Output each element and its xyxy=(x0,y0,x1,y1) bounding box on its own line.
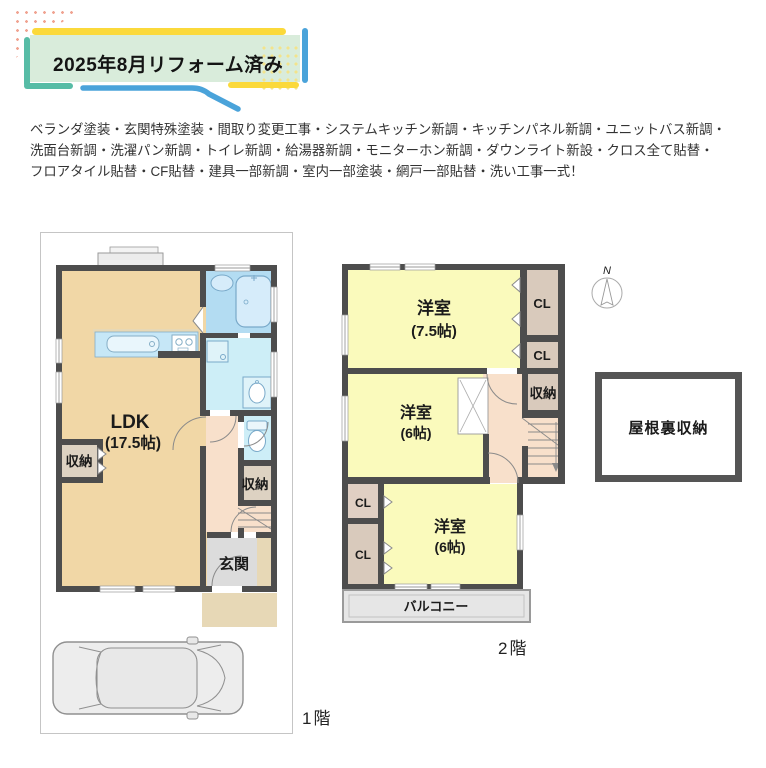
compass-icon: N xyxy=(586,262,630,316)
label-room75: 洋室 xyxy=(417,298,451,318)
kitchen-sink xyxy=(107,336,159,352)
floor-label-1f: 1階 xyxy=(302,704,332,729)
floor-plan-1f: LDK (17.5帖) 収納 収納 玄関 xyxy=(40,232,293,734)
room-75 xyxy=(348,270,520,368)
description-line-2: 洗面台新調・洗濯パン新調・トイレ新調・給湯器新調・モニターホン新調・ダウンライト… xyxy=(30,140,760,161)
renovation-banner: 2025年8月リフォーム済み xyxy=(10,6,330,118)
label-ldk: LDK xyxy=(110,412,149,433)
label-ldk-size: (17.5帖) xyxy=(105,433,161,452)
label-room6mid-size: (6帖) xyxy=(400,425,431,441)
entrance-side-strip xyxy=(257,538,271,586)
banner-title: 2025年8月リフォーム済み xyxy=(53,50,303,77)
label-room6btm-size: (6帖) xyxy=(434,539,465,555)
toilet-fixture xyxy=(247,421,267,452)
kitchen-counter xyxy=(93,329,206,358)
shower-basin xyxy=(211,275,233,291)
hallway-1f xyxy=(206,416,238,532)
banner-bar-teal-left xyxy=(24,37,30,87)
label-room75-size: (7.5帖) xyxy=(411,322,457,340)
entrance-porch xyxy=(202,593,277,627)
label-cl-left1: CL xyxy=(355,496,371,510)
label-cl-left2: CL xyxy=(355,548,371,562)
banner-swoosh xyxy=(40,80,250,120)
label-storage-2f: 収納 xyxy=(530,385,557,401)
sliding-door xyxy=(458,378,488,434)
floor-plan-2f: 洋室 (7.5帖) CL CL 収納 洋室 (6帖) 洋室 (6帖) CL CL… xyxy=(336,256,568,628)
car-icon xyxy=(53,637,243,719)
attic-room: 屋根裏収納 xyxy=(595,372,742,482)
label-balcony: バルコニー xyxy=(404,599,469,614)
banner-bar-yellow-top xyxy=(32,28,286,35)
floor-label-2f: 2階 xyxy=(498,634,528,659)
label-attic: 屋根裏収納 xyxy=(628,417,708,438)
label-room6btm: 洋室 xyxy=(434,517,466,536)
label-storage-left: 収納 xyxy=(66,453,93,469)
page: 2025年8月リフォーム済み ベランダ塗装・玄関特殊塗装・間取り変更工事・システ… xyxy=(0,0,766,768)
renovation-description: ベランダ塗装・玄関特殊塗装・間取り変更工事・システムキッチン新調・キッチンパネル… xyxy=(30,119,760,182)
description-line-1: ベランダ塗装・玄関特殊塗装・間取り変更工事・システムキッチン新調・キッチンパネル… xyxy=(30,119,760,140)
label-room6mid: 洋室 xyxy=(400,403,432,422)
label-cl-top2: CL xyxy=(533,348,550,363)
bathtub xyxy=(236,276,271,327)
label-entrance: 玄関 xyxy=(219,555,249,573)
description-line-3: フロアタイル貼替・CF貼替・建具一部新調・室内一部塗装・網戸一部貼替・洗い工事一… xyxy=(30,161,760,182)
label-cl-top1: CL xyxy=(533,296,550,311)
label-storage-right: 収納 xyxy=(242,476,269,492)
svg-text:N: N xyxy=(603,265,611,277)
